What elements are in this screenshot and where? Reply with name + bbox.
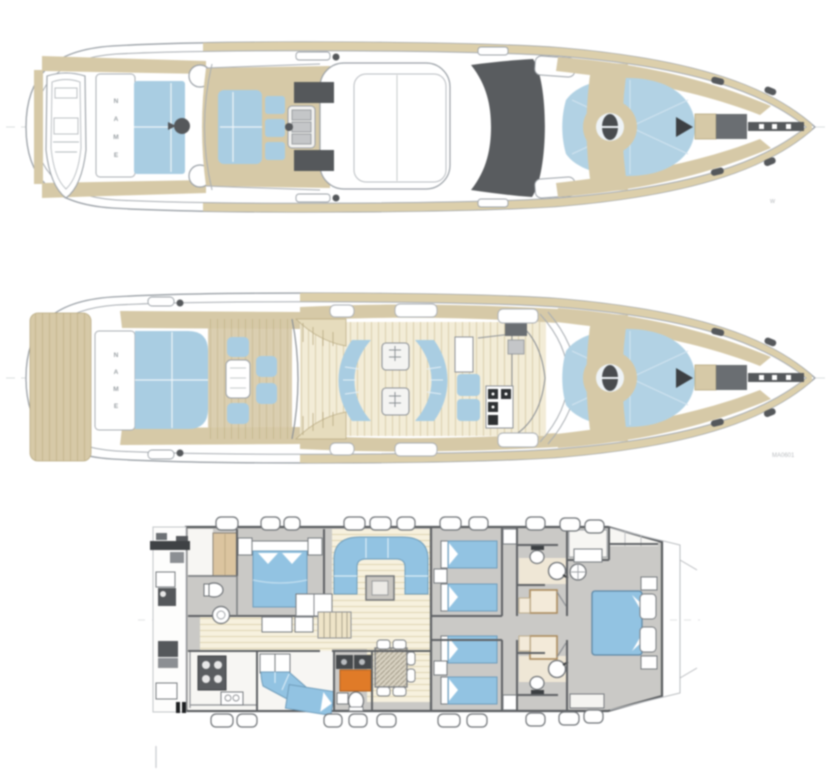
svg-text:w: w — [769, 198, 776, 205]
svg-text:E: E — [114, 152, 119, 159]
svg-text:A: A — [114, 116, 119, 123]
svg-text:MA0601: MA0601 — [772, 453, 795, 459]
svg-text:M: M — [113, 134, 118, 141]
svg-text:A: A — [114, 369, 119, 376]
svg-text:E: E — [114, 403, 119, 410]
svg-text:M: M — [113, 386, 118, 393]
svg-text:N: N — [114, 98, 119, 105]
svg-text:N: N — [114, 352, 119, 359]
